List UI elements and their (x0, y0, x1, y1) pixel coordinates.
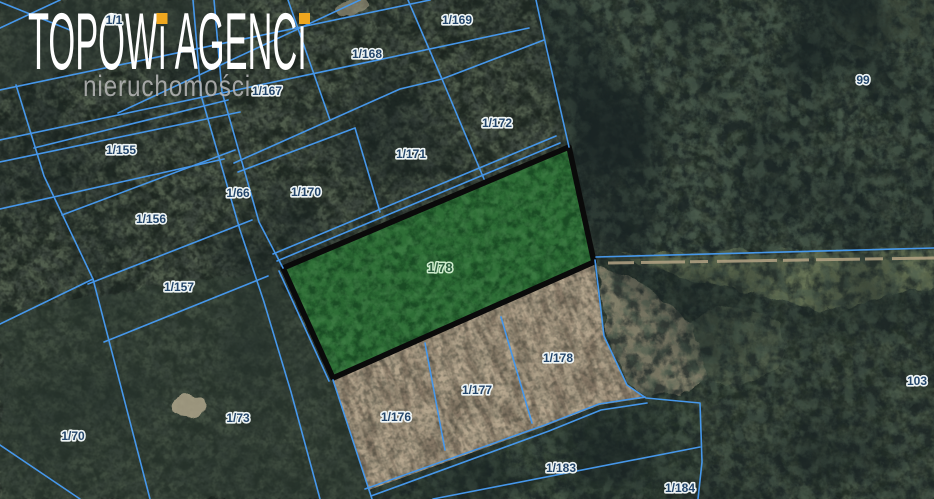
svg-text:1/167: 1/167 (252, 84, 282, 98)
svg-text:1/78: 1/78 (427, 260, 452, 275)
svg-text:1/157: 1/157 (164, 280, 194, 294)
svg-text:1/171: 1/171 (396, 147, 426, 161)
svg-text:1/156: 1/156 (136, 212, 166, 226)
svg-text:1/1: 1/1 (106, 13, 123, 27)
svg-text:1/155: 1/155 (106, 143, 136, 157)
svg-text:103: 103 (907, 374, 927, 388)
svg-text:1/176: 1/176 (381, 410, 411, 424)
svg-text:1/177: 1/177 (462, 383, 492, 397)
svg-text:99: 99 (856, 73, 870, 87)
svg-text:1/70: 1/70 (61, 429, 85, 443)
svg-text:1/66: 1/66 (226, 186, 250, 200)
svg-text:nieruchomości: nieruchomości (83, 69, 251, 103)
svg-text:1/183: 1/183 (546, 461, 576, 475)
svg-text:1/170: 1/170 (291, 185, 321, 199)
svg-text:1/73: 1/73 (226, 411, 250, 425)
svg-text:1/172: 1/172 (482, 116, 512, 130)
svg-text:1/178: 1/178 (543, 351, 573, 365)
svg-text:1/169: 1/169 (442, 13, 472, 27)
svg-text:1/184: 1/184 (665, 481, 695, 495)
svg-text:1/168: 1/168 (352, 47, 382, 61)
